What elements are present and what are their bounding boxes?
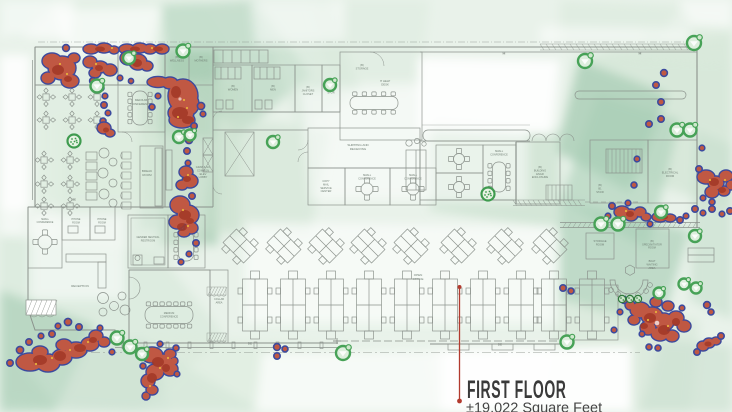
svg-text:H: H <box>498 342 501 347</box>
svg-text:±19,022 Square Feet: ±19,022 Square Feet <box>466 401 602 412</box>
svg-text:BREAKROOM: BREAKROOM <box>142 169 152 177</box>
svg-text:IT HELPDESK: IT HELPDESK <box>380 79 391 87</box>
svg-text:OPENOFFICE: OPENOFFICE <box>413 273 424 281</box>
svg-text:RECEPTION: RECEPTION <box>71 284 89 288</box>
svg-text:H: H <box>248 341 251 346</box>
svg-text:H: H <box>503 51 506 56</box>
svg-text:PHONEROOM: PHONEROOM <box>98 218 107 224</box>
svg-text:H: H <box>639 51 642 56</box>
svg-text:H: H <box>72 197 75 202</box>
svg-text:PHONEROOM: PHONEROOM <box>72 218 81 224</box>
svg-text:SHIPPING ANDRECEIVING: SHIPPING ANDRECEIVING <box>347 143 369 151</box>
